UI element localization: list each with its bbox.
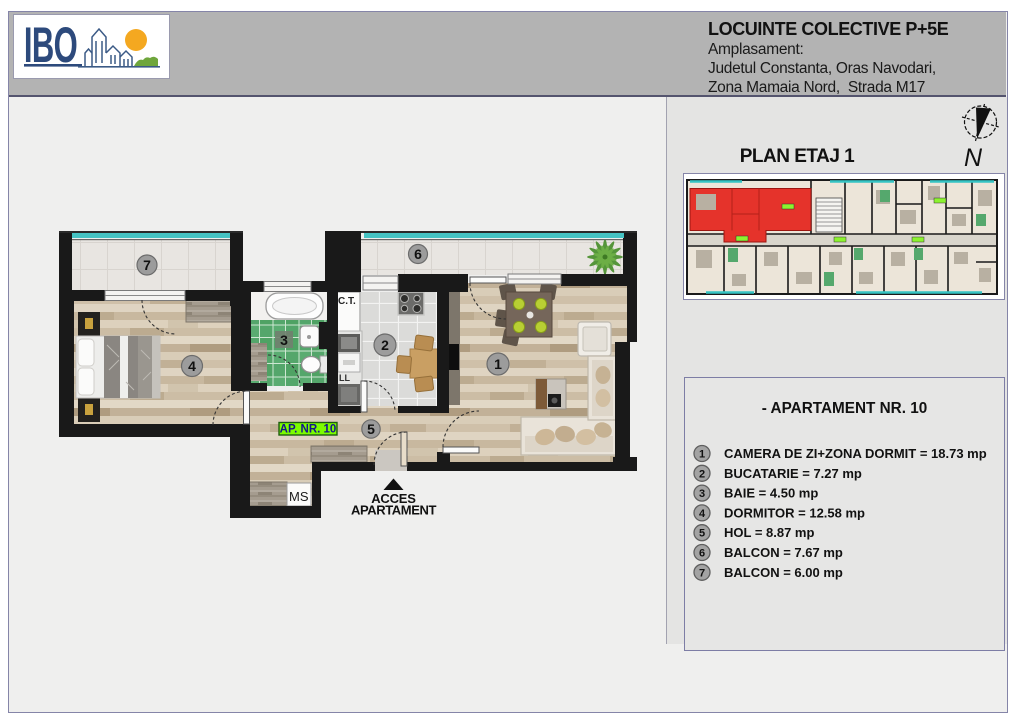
svg-text:4: 4 <box>188 358 196 374</box>
svg-text:5: 5 <box>367 421 375 437</box>
svg-text:6: 6 <box>414 246 422 262</box>
svg-text:3: 3 <box>280 332 288 348</box>
svg-text:LL: LL <box>339 373 350 383</box>
svg-text:APARTAMENT: APARTAMENT <box>351 503 437 518</box>
svg-text:2: 2 <box>381 337 389 353</box>
svg-text:C.T.: C.T. <box>338 296 356 307</box>
svg-text:7: 7 <box>143 257 151 273</box>
svg-text:MS: MS <box>289 489 309 504</box>
svg-text:1: 1 <box>494 356 502 372</box>
svg-text:AP. NR. 10: AP. NR. 10 <box>280 424 337 436</box>
